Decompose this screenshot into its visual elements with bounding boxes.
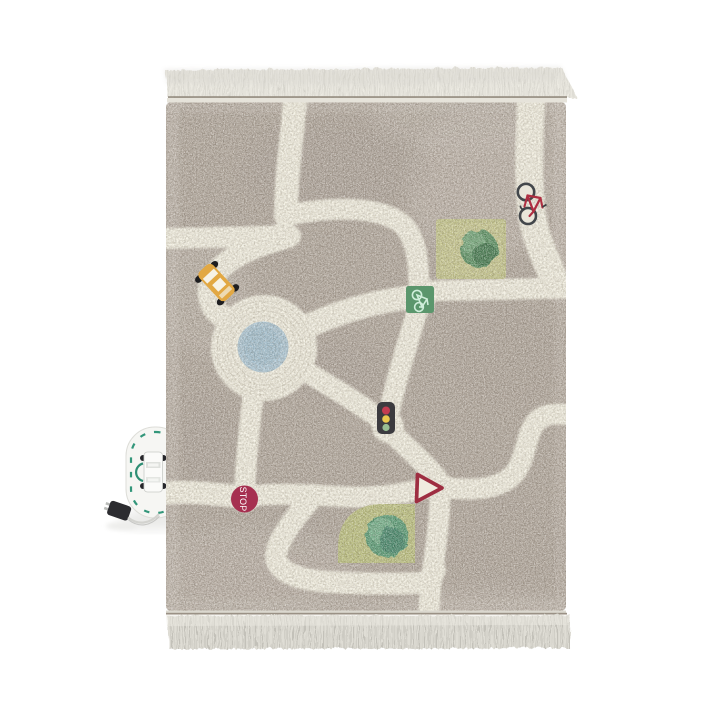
svg-text:STOP: STOP — [238, 487, 248, 512]
